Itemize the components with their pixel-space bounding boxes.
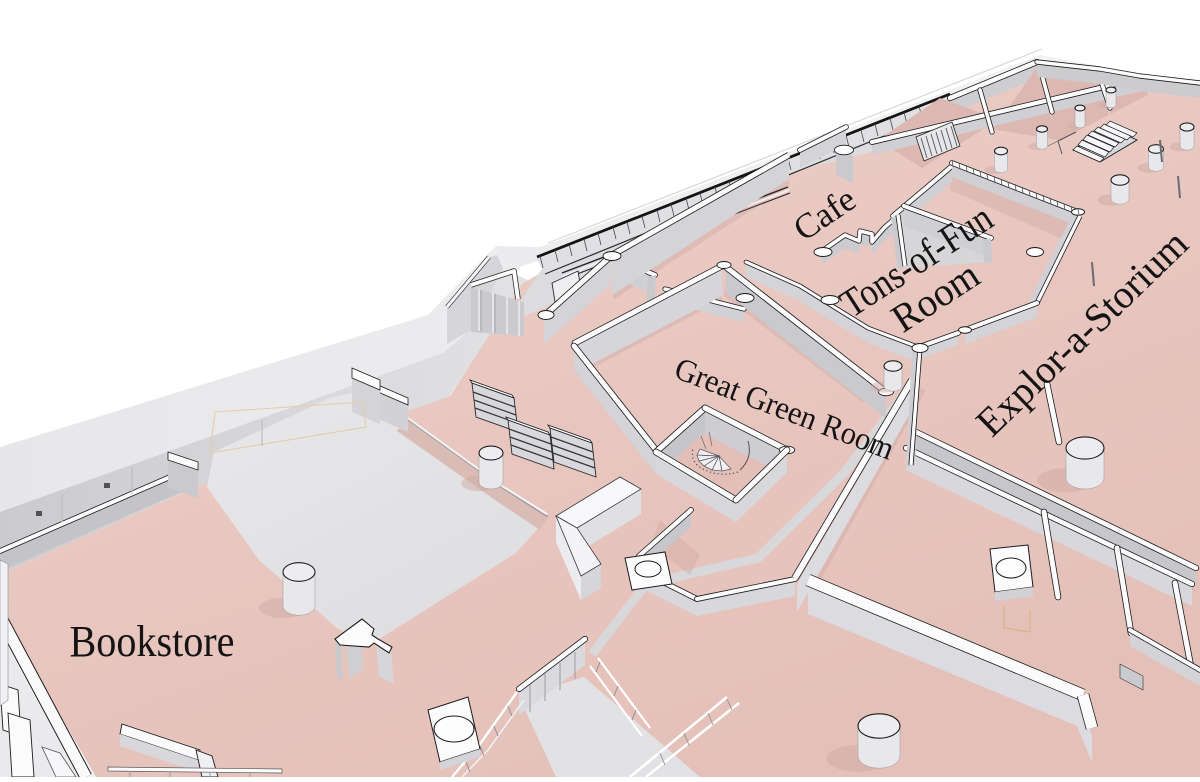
svg-text:Bookstore: Bookstore xyxy=(70,617,235,666)
